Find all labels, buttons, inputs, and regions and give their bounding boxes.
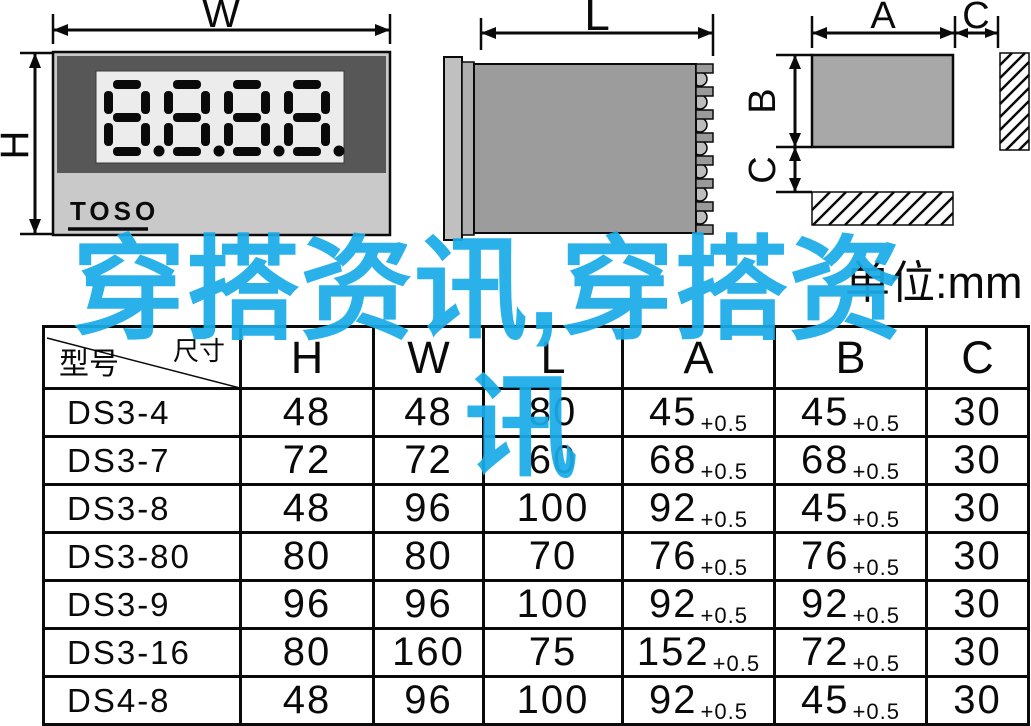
model-cell: DS3-16 [44, 629, 241, 677]
model-cell: DS3-9 [44, 581, 241, 629]
l-cell: 100 [484, 677, 623, 725]
l-arrow-right [698, 27, 713, 39]
hatch-strip-bottom [812, 192, 953, 225]
h-cell: 48 [241, 677, 374, 725]
w-dim-label: W [202, 0, 240, 36]
w-cell: 96 [374, 485, 484, 533]
b-cell: 45+0.5 [775, 677, 927, 725]
b-dim-label: B [742, 88, 784, 113]
h-dim-label: H [0, 131, 37, 160]
w-cell: 160 [374, 629, 484, 677]
model-cell: DS3-80 [44, 533, 241, 581]
a-dim-label: A [870, 0, 896, 37]
h-cell: 80 [241, 533, 374, 581]
corner-label-dimensions: 尺寸 [173, 331, 225, 368]
h-arrow-bottom [29, 219, 41, 234]
tolerance: +0.5 [853, 555, 900, 580]
h-cell: 48 [241, 389, 374, 437]
b-cell: 68+0.5 [775, 437, 927, 485]
table-row: DS3-7 72 72 60 68+0.5 68+0.5 30 [44, 437, 1029, 485]
c-cell: 30 [927, 437, 1029, 485]
col-header-b: B [775, 327, 927, 389]
tolerance: +0.5 [701, 507, 748, 532]
b-cell: 45+0.5 [775, 389, 927, 437]
page: { "unit_label": "单位:mm", "watermark": { … [0, 0, 1031, 718]
tolerance: +0.5 [853, 411, 900, 436]
b-cell: 45+0.5 [775, 485, 927, 533]
b-cell: 76+0.5 [775, 533, 927, 581]
table-row: DS3-8 48 96 100 92+0.5 45+0.5 30 [44, 485, 1029, 533]
l-arrow-left [481, 27, 496, 39]
col-header-l: L [484, 327, 623, 389]
c-top-dim-label: C [962, 0, 989, 37]
h-cell: 72 [241, 437, 374, 485]
cutout-rect [812, 55, 953, 147]
a-cell: 92+0.5 [623, 485, 775, 533]
w-cell: 48 [374, 389, 484, 437]
tolerance: +0.5 [853, 507, 900, 532]
b-cell: 72+0.5 [775, 629, 927, 677]
l-cell: 80 [484, 389, 623, 437]
model-cell: DS3-7 [44, 437, 241, 485]
c-cell: 30 [927, 533, 1029, 581]
c-cell: 30 [927, 389, 1029, 437]
h-cell: 96 [241, 581, 374, 629]
brand-label: TOSO [70, 196, 159, 226]
tolerance: +0.5 [701, 603, 748, 628]
l-cell: 100 [484, 485, 623, 533]
w-arrow-left [53, 24, 68, 36]
h-cell: 48 [241, 485, 374, 533]
table-row: DS3-9 96 96 100 92+0.5 92+0.5 30 [44, 581, 1029, 629]
table-row: DS3-80 80 80 70 76+0.5 76+0.5 30 [44, 533, 1029, 581]
table-row: DS3-4 48 48 80 45+0.5 45+0.5 30 [44, 389, 1029, 437]
a-cell: 152+0.5 [623, 629, 775, 677]
unit-label: 单位:mm [845, 246, 1022, 311]
a-cell: 92+0.5 [623, 581, 775, 629]
side-bezel [444, 57, 462, 240]
l-cell: 70 [484, 533, 623, 581]
model-cell: DS3-8 [44, 485, 241, 533]
table-corner-cell: 尺寸 型号 [44, 327, 241, 389]
corner-label-model: 型号 [59, 339, 119, 383]
h-arrow-top [29, 53, 41, 68]
a-cell: 92+0.5 [623, 677, 775, 725]
panel-cutout-view: A C B C [742, 0, 1029, 225]
l-dim-label: L [584, 0, 610, 40]
dimensions-table: 尺寸 型号 H W L A B C DS3-4 48 48 80 45+0.5 … [42, 325, 1030, 726]
col-header-c: C [927, 327, 1029, 389]
l-cell: 100 [484, 581, 623, 629]
side-view: L [444, 0, 713, 240]
table-row: DS4-8 48 96 100 92+0.5 45+0.5 30 [44, 677, 1029, 725]
c-cell: 30 [927, 629, 1029, 677]
tolerance: +0.5 [701, 555, 748, 580]
h-cell: 80 [241, 629, 374, 677]
col-header-a: A [623, 327, 775, 389]
w-cell: 80 [374, 533, 484, 581]
model-cell: DS3-4 [44, 389, 241, 437]
table-row: DS3-16 80 160 75 152+0.5 72+0.5 30 [44, 629, 1029, 677]
a-cell: 76+0.5 [623, 533, 775, 581]
w-cell: 96 [374, 581, 484, 629]
model-cell: DS4-8 [44, 677, 241, 725]
b-arrow-bottom [789, 133, 801, 147]
c-left-arrow-bottom [789, 178, 801, 192]
a-cell: 45+0.5 [623, 389, 775, 437]
w-cell: 96 [374, 677, 484, 725]
l-cell: 75 [484, 629, 623, 677]
hatch-strip-right [1000, 53, 1029, 150]
a-cell: 68+0.5 [623, 437, 775, 485]
col-header-w: W [374, 327, 484, 389]
tolerance: +0.5 [853, 651, 900, 676]
w-cell: 72 [374, 437, 484, 485]
l-cell: 60 [484, 437, 623, 485]
a-arrow-right [940, 27, 955, 39]
side-body [474, 64, 696, 233]
table-header-row: 尺寸 型号 H W L A B C [44, 327, 1029, 389]
c-cell: 30 [927, 677, 1029, 725]
tolerance: +0.5 [701, 459, 748, 484]
b-cell: 92+0.5 [775, 581, 927, 629]
tolerance: +0.5 [853, 603, 900, 628]
c-cell: 30 [927, 581, 1029, 629]
tolerance: +0.5 [701, 411, 748, 436]
tolerance: +0.5 [853, 699, 900, 724]
tolerance: +0.5 [853, 459, 900, 484]
tolerance: +0.5 [713, 651, 760, 676]
b-arrow-top [789, 55, 801, 69]
front-view: W H [0, 0, 390, 235]
tolerance: +0.5 [701, 699, 748, 724]
c-cell: 30 [927, 485, 1029, 533]
col-header-h: H [241, 327, 374, 389]
a-arrow-left [812, 27, 827, 39]
side-bezel-step [462, 62, 474, 235]
w-arrow-right [375, 24, 390, 36]
c-left-arrow-top [789, 147, 801, 161]
technical-drawing: W H [0, 0, 1031, 245]
c-left-dim-label: C [742, 156, 784, 183]
